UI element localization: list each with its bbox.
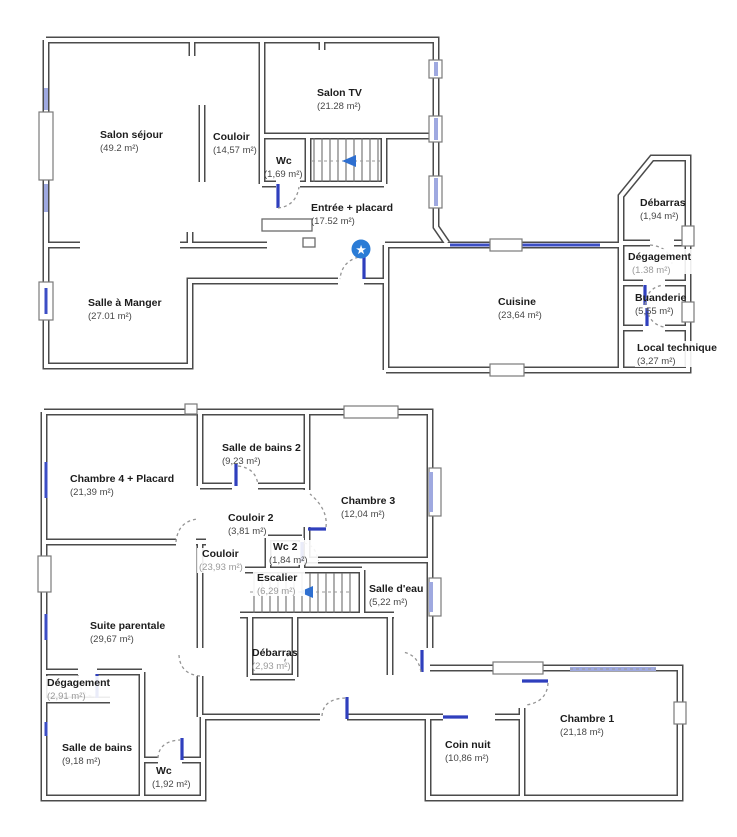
walls — [44, 412, 680, 798]
svg-text:(29,67 m²): (29,67 m²) — [90, 634, 134, 645]
room-label: Chambre 4 + Placard(21,39 m²) — [70, 473, 174, 498]
svg-text:Buanderie: Buanderie — [635, 292, 687, 304]
window — [185, 404, 197, 414]
svg-text:(21,18 m²): (21,18 m²) — [560, 727, 604, 738]
svg-text:(6,29 m²): (6,29 m²) — [257, 586, 296, 597]
svg-text:Débarras: Débarras — [252, 647, 298, 659]
room-label: Suite parentale(29,67 m²) — [90, 620, 165, 645]
svg-text:(1,84 m²): (1,84 m²) — [269, 555, 308, 566]
first-floor-plan: Chambre 4 + Placard(21,39 m²) Salle de b… — [38, 404, 686, 798]
door-swing — [176, 519, 198, 542]
room-label: Débarras(2,93 m²) — [252, 647, 298, 672]
svg-text:(3,81 m²): (3,81 m²) — [228, 526, 267, 537]
staircase — [312, 138, 380, 182]
svg-text:Salon TV: Salon TV — [317, 87, 362, 99]
svg-text:(17.52 m²): (17.52 m²) — [311, 216, 355, 227]
svg-text:Salle de bains: Salle de bains — [62, 742, 132, 754]
svg-text:Cuisine: Cuisine — [498, 296, 536, 308]
svg-text:Couloir: Couloir — [213, 131, 250, 143]
svg-text:(1.38 m²): (1.38 m²) — [632, 265, 671, 276]
room-label: Salon séjour(49.2 m²) — [100, 129, 163, 154]
window — [38, 556, 51, 592]
svg-text:Salle à Manger: Salle à Manger — [88, 297, 162, 309]
room-label: Salle d'eau(5,22 m²) — [369, 583, 423, 608]
svg-text:(2,91 m²): (2,91 m²) — [47, 691, 86, 702]
placard-closet — [262, 219, 312, 231]
windows — [39, 60, 694, 376]
svg-text:(3,27 m²): (3,27 m²) — [637, 356, 676, 367]
svg-text:Chambre 3: Chambre 3 — [341, 495, 395, 507]
room-label: Buanderie(5,55 m²) — [635, 292, 687, 317]
door-swing — [158, 740, 180, 758]
svg-text:(23,93 m²): (23,93 m²) — [199, 562, 243, 573]
svg-text:(1,69 m²): (1,69 m²) — [264, 169, 303, 180]
room-label: Chambre 3(12,04 m²) — [341, 495, 395, 520]
wall-stub — [303, 238, 315, 247]
room-label: Chambre 1(21,18 m²) — [560, 713, 614, 738]
room-label: Coin nuit(10,86 m²) — [445, 739, 491, 764]
svg-text:(49.2 m²): (49.2 m²) — [100, 143, 139, 154]
svg-text:(1,92 m²): (1,92 m²) — [152, 779, 191, 790]
room-label: Salon TV(21.28 m²) — [317, 87, 362, 112]
window — [344, 406, 398, 418]
svg-text:(9,18 m²): (9,18 m²) — [62, 756, 101, 767]
svg-text:(12,04 m²): (12,04 m²) — [341, 509, 385, 520]
ground-floor-plan: ★ Salon séjour(49.2 m²) Couloir(14,57 m²… — [39, 40, 717, 376]
svg-text:(2,93 m²): (2,93 m²) — [252, 661, 291, 672]
window — [493, 662, 543, 674]
svg-text:Coin nuit: Coin nuit — [445, 739, 491, 751]
room-label: Entrée + placard(17.52 m²) — [311, 202, 393, 227]
svg-text:(21,39 m²): (21,39 m²) — [70, 487, 114, 498]
door-swing — [179, 655, 200, 676]
svg-text:Chambre 4 + Placard: Chambre 4 + Placard — [70, 473, 174, 485]
door-swing — [310, 494, 326, 527]
window — [674, 702, 686, 724]
door-swing — [278, 187, 299, 208]
svg-text:Chambre 1: Chambre 1 — [560, 713, 614, 725]
svg-text:(1,94 m²): (1,94 m²) — [640, 211, 679, 222]
window — [39, 112, 53, 180]
svg-text:Local technique: Local technique — [637, 342, 717, 354]
svg-text:Dégagement: Dégagement — [628, 251, 692, 263]
window — [682, 226, 694, 246]
svg-text:Couloir: Couloir — [202, 548, 239, 560]
room-label: Salle à Manger(27.01 m²) — [88, 297, 162, 322]
svg-text:Entrée + placard: Entrée + placard — [311, 202, 393, 214]
svg-text:Suite parentale: Suite parentale — [90, 620, 165, 632]
room-label: Salle de bains 2(9,23 m²) — [222, 442, 301, 467]
svg-text:(5,22 m²): (5,22 m²) — [369, 597, 408, 608]
floor-plan-sheet: ★ Salon séjour(49.2 m²) Couloir(14,57 m²… — [0, 0, 737, 837]
svg-text:(5,55 m²): (5,55 m²) — [635, 306, 674, 317]
svg-text:Escalier: Escalier — [257, 572, 297, 584]
svg-text:Wc: Wc — [156, 765, 172, 777]
room-label: Salle de bains(9,18 m²) — [62, 742, 132, 767]
door-swing — [340, 256, 364, 279]
room-label: Wc(1,92 m²) — [152, 765, 191, 790]
door-swing — [526, 683, 548, 705]
room-label: Wc(1,69 m²) — [264, 155, 303, 180]
svg-text:Salle d'eau: Salle d'eau — [369, 583, 423, 595]
svg-text:(27.01 m²): (27.01 m²) — [88, 311, 132, 322]
svg-text:(14,57 m²): (14,57 m²) — [213, 145, 257, 156]
svg-text:(21.28 m²): (21.28 m²) — [317, 101, 361, 112]
room-label: Couloir(14,57 m²) — [213, 131, 257, 156]
door-swing — [322, 698, 345, 716]
window — [490, 364, 524, 376]
window — [490, 239, 522, 251]
svg-text:Wc: Wc — [276, 155, 292, 167]
floor-plan-canvas: ★ Salon séjour(49.2 m²) Couloir(14,57 m²… — [0, 0, 737, 837]
star-icon: ★ — [356, 245, 366, 257]
door-swing — [238, 466, 258, 485]
door-swing — [402, 652, 421, 672]
svg-text:(10,86 m²): (10,86 m²) — [445, 753, 489, 764]
svg-text:Salon séjour: Salon séjour — [100, 129, 163, 141]
svg-text:Dégagement: Dégagement — [47, 677, 111, 689]
room-label: Cuisine(23,64 m²) — [498, 296, 542, 321]
svg-text:(9,23 m²): (9,23 m²) — [222, 456, 261, 467]
svg-text:Débarras: Débarras — [640, 197, 686, 209]
svg-text:Wc 2: Wc 2 — [273, 541, 298, 553]
svg-text:(23,64 m²): (23,64 m²) — [498, 310, 542, 321]
stair-direction-arrow-icon — [342, 155, 356, 167]
entrance-star-marker[interactable]: ★ — [352, 240, 371, 259]
svg-text:Salle de bains 2: Salle de bains 2 — [222, 442, 301, 454]
room-label: Débarras(1,94 m²) — [640, 197, 686, 222]
room-label: Couloir 2(3,81 m²) — [228, 512, 274, 537]
svg-text:Couloir 2: Couloir 2 — [228, 512, 274, 524]
window — [682, 302, 694, 322]
